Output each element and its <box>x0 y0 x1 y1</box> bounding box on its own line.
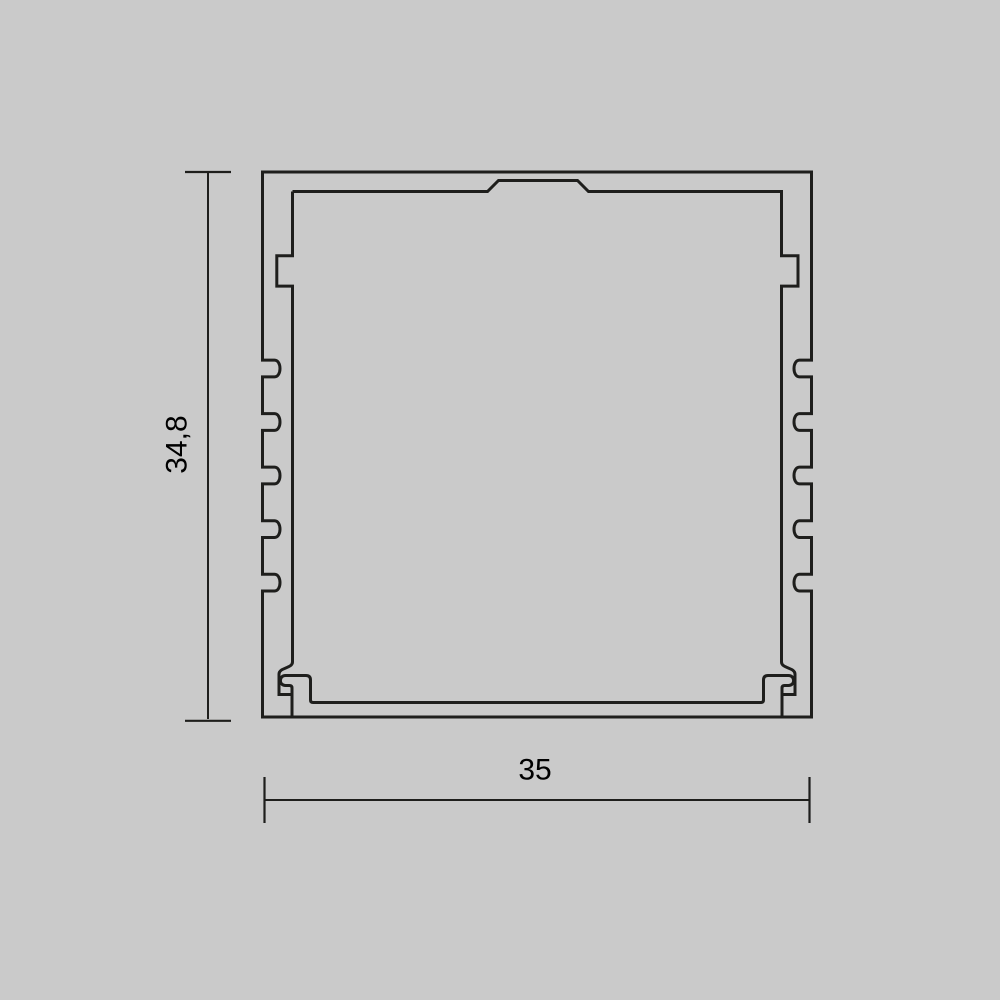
svg-text:35: 35 <box>518 753 551 786</box>
svg-text:34,8: 34,8 <box>161 415 194 473</box>
